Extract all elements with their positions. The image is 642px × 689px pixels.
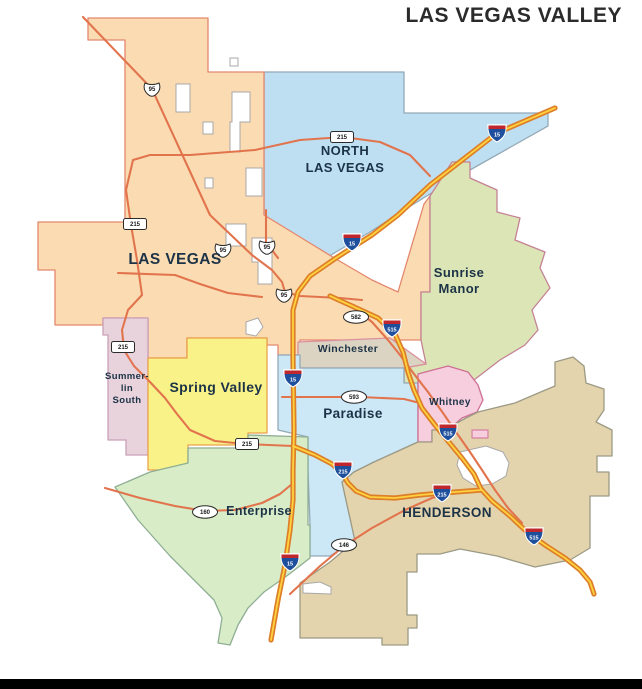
shield-label: 593 <box>349 395 360 401</box>
shield-label: 215 <box>437 493 446 499</box>
map-title: LAS VEGAS VALLEY <box>406 4 622 28</box>
shield-label: 215 <box>242 442 253 448</box>
label-whitney: Whitney <box>429 397 471 408</box>
shield-label: 15 <box>290 378 296 384</box>
map-stage: 9595959521521521521558259316014615151515… <box>0 0 642 689</box>
shield-box-215: 215 <box>124 219 147 230</box>
unincorporated-patch <box>226 224 246 246</box>
shield-label: 215 <box>337 135 348 141</box>
unincorporated-patch <box>176 84 190 112</box>
shield-label: 215 <box>130 222 141 228</box>
shield-label: 160 <box>200 510 211 516</box>
label-winchester: Winchester <box>318 343 379 355</box>
shield-box-215: 215 <box>331 132 354 143</box>
shield-oval-146: 146 <box>332 539 357 551</box>
shield-label: 15 <box>287 562 293 568</box>
unincorporated-patch <box>246 168 262 196</box>
shield-oval-160: 160 <box>193 506 218 518</box>
label-summerlin-south: lin <box>121 383 133 394</box>
shield-label: 95 <box>149 87 156 93</box>
label-enterprise: Enterprise <box>226 504 292 518</box>
shield-label: 15 <box>494 133 500 139</box>
shield-label: 146 <box>339 543 350 549</box>
shield-label: 95 <box>264 245 271 251</box>
shield-oval-593: 593 <box>342 391 367 403</box>
unincorporated-patch <box>203 122 213 134</box>
label-spring-valley: Spring Valley <box>169 379 262 395</box>
label-paradise: Paradise <box>323 406 383 421</box>
map-canvas: 9595959521521521521558259316014615151515… <box>0 0 642 689</box>
shield-label: 15 <box>349 242 355 248</box>
label-sunrise-manor: Manor <box>439 281 480 296</box>
shield-box-215: 215 <box>236 439 259 450</box>
shield-label: 95 <box>281 293 288 299</box>
shield-label: 515 <box>387 328 396 334</box>
footer-bar <box>0 679 642 689</box>
shield-label: 582 <box>351 315 362 321</box>
label-north-las-vegas: NORTH <box>321 143 369 158</box>
shield-label: 515 <box>529 536 538 542</box>
unincorporated-patch <box>230 58 238 66</box>
label-summerlin-south: Summer- <box>105 371 149 382</box>
region-enterprise <box>115 435 310 645</box>
shield-interstate-15: 15 <box>344 235 361 251</box>
region-whitney-exclave <box>472 430 488 438</box>
shield-oval-582: 582 <box>344 311 369 323</box>
unincorporated-patch <box>205 178 213 188</box>
label-sunrise-manor: Sunrise <box>434 265 484 280</box>
shield-box-215: 215 <box>112 342 135 353</box>
label-north-las-vegas: LAS VEGAS <box>306 160 385 175</box>
shield-label: 515 <box>443 432 452 438</box>
label-las-vegas: LAS VEGAS <box>128 251 221 268</box>
shield-label: 215 <box>118 345 129 351</box>
label-summerlin-south: South <box>113 395 142 406</box>
label-henderson: HENDERSON <box>402 505 492 520</box>
shield-label: 215 <box>338 470 347 476</box>
